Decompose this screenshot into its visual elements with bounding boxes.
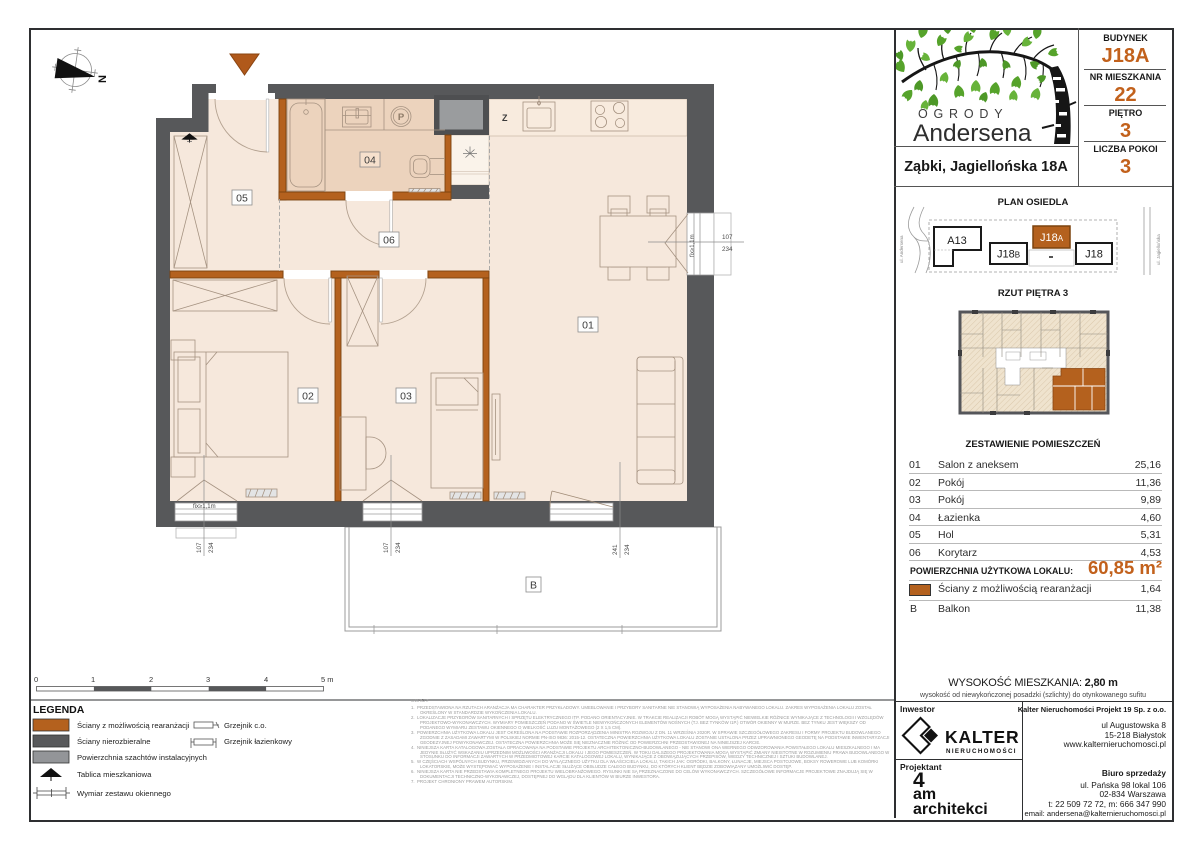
svg-text:Z: Z bbox=[502, 113, 508, 123]
svg-text:241: 241 bbox=[612, 544, 619, 555]
svg-text:LEGENDA: LEGENDA bbox=[33, 704, 85, 716]
svg-text:ul. Andersena: ul. Andersena bbox=[899, 235, 904, 263]
svg-text:Ściany nierozbieralne: Ściany nierozbieralne bbox=[77, 737, 151, 746]
svg-text:107: 107 bbox=[383, 542, 390, 553]
svg-text:ul. Jagiellońska: ul. Jagiellońska bbox=[1156, 234, 1161, 265]
svg-text:Ściany z możliwością rearanżac: Ściany z możliwością rearanżacji bbox=[77, 721, 190, 730]
svg-text:02: 02 bbox=[302, 391, 314, 403]
svg-text:1: 1 bbox=[91, 675, 95, 684]
svg-text:Grzejnik łazienkowy: Grzejnik łazienkowy bbox=[224, 737, 292, 746]
svg-text:fix≥1,1m: fix≥1,1m bbox=[193, 504, 216, 510]
svg-text:Grzejnik c.o.: Grzejnik c.o. bbox=[224, 721, 267, 730]
svg-text:J18A: J18A bbox=[1040, 232, 1064, 244]
svg-text:05: 05 bbox=[236, 193, 248, 205]
svg-text:03: 03 bbox=[400, 391, 412, 403]
svg-text:234: 234 bbox=[395, 542, 402, 553]
svg-text:J18B: J18B bbox=[997, 249, 1020, 261]
svg-text:3: 3 bbox=[206, 675, 210, 684]
svg-text:01: 01 bbox=[582, 320, 594, 332]
svg-text:J18: J18 bbox=[1085, 249, 1103, 261]
svg-text:2: 2 bbox=[149, 675, 153, 684]
svg-text:0: 0 bbox=[34, 675, 38, 684]
svg-text:Powierzchnia szachtów instalac: Powierzchnia szachtów instalacyjnych bbox=[77, 753, 207, 762]
svg-text:Andersena: Andersena bbox=[913, 120, 1032, 146]
svg-text:N: N bbox=[97, 75, 109, 83]
svg-text:107: 107 bbox=[196, 542, 203, 553]
svg-text:5 m: 5 m bbox=[321, 675, 334, 684]
svg-text:Wymiar zestawu okiennego: Wymiar zestawu okiennego bbox=[77, 789, 171, 798]
svg-text:Tablica mieszkaniowa: Tablica mieszkaniowa bbox=[77, 770, 152, 779]
svg-text:107: 107 bbox=[722, 234, 733, 241]
svg-text:04: 04 bbox=[364, 155, 376, 167]
svg-text:P: P bbox=[398, 112, 405, 123]
svg-text:fix≥1,1m: fix≥1,1m bbox=[690, 234, 696, 257]
svg-text:OGRODY: OGRODY bbox=[918, 107, 1008, 121]
svg-text:A13: A13 bbox=[947, 235, 967, 247]
svg-text:06: 06 bbox=[383, 235, 395, 247]
svg-text:B: B bbox=[530, 580, 537, 592]
svg-text:234: 234 bbox=[624, 544, 631, 555]
svg-text:4: 4 bbox=[264, 675, 268, 684]
svg-text:234: 234 bbox=[208, 542, 215, 553]
svg-text:234: 234 bbox=[722, 246, 733, 253]
